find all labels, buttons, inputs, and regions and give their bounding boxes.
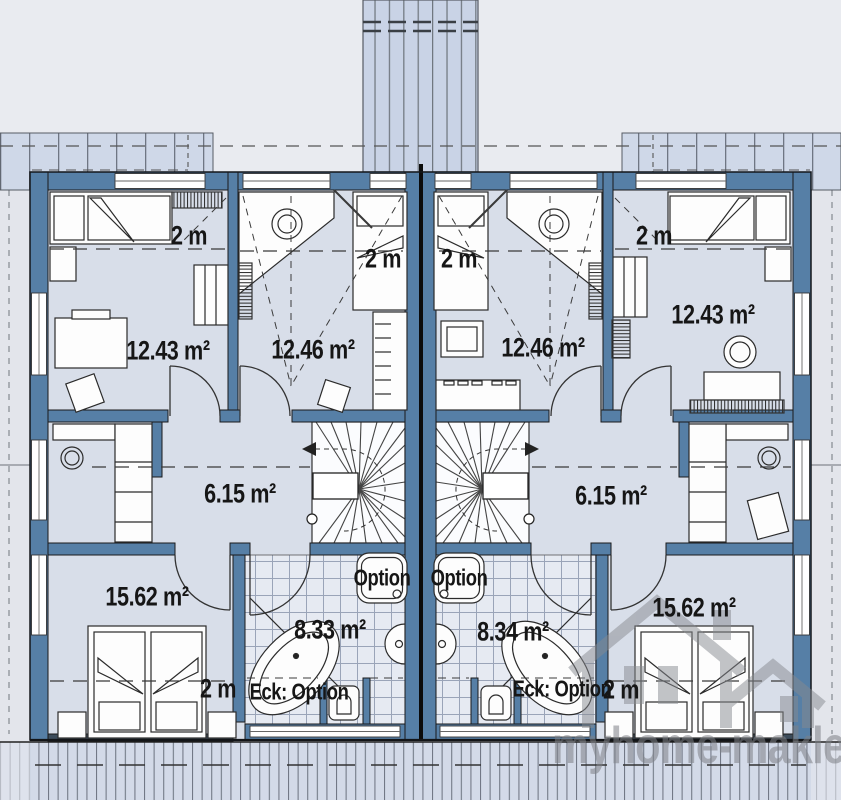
desk-left-top	[55, 310, 127, 368]
radiator-right-top	[612, 320, 630, 358]
watermark-chimney	[713, 610, 731, 640]
nightstand-left-2	[208, 712, 236, 738]
radiator-left-child	[239, 263, 252, 319]
floor-plan-canvas: 12.43 m² 2 m 12.46 m² 2 m 6.15 m² 8.33 m…	[0, 0, 841, 800]
floor-plan-drawing	[0, 0, 841, 800]
stair-landing-right	[483, 473, 528, 499]
wall-rooms-divider-right	[603, 172, 613, 422]
wardrobe-left-top	[194, 265, 228, 325]
stair-landing-left	[313, 473, 358, 499]
sideboard-right-top	[690, 400, 784, 413]
wall-bath-bedroom-left	[233, 555, 245, 722]
bed-left-top	[50, 192, 172, 244]
shower-right	[434, 553, 484, 603]
bed-left-main	[88, 626, 206, 738]
dresser-right-child	[436, 380, 520, 410]
cabinet-left-child	[373, 312, 407, 410]
bath-stub-right-1	[471, 678, 478, 724]
wardrobe-right-top	[613, 257, 647, 317]
armchair-right-child	[441, 321, 483, 357]
shelf-right-hall	[726, 424, 788, 440]
wall-rooms-divider-left	[228, 172, 238, 422]
bath-stub-left-2	[363, 678, 370, 724]
party-wall-centerline	[419, 164, 423, 740]
nightstand-left-1	[58, 712, 86, 738]
desk-right-top	[704, 372, 780, 400]
shower-left	[357, 553, 407, 603]
radiator-left-top	[172, 192, 222, 208]
radiator-right-child	[589, 263, 602, 319]
toilet-right	[481, 686, 511, 720]
toilet-left	[329, 686, 359, 720]
side-table-right-top	[765, 247, 791, 281]
bed-right-top	[668, 192, 790, 244]
wardrobe-left-hall	[115, 424, 152, 542]
shelf-left-hall	[53, 424, 115, 440]
wardrobe-right-hall	[689, 424, 726, 542]
side-table-left-top	[50, 247, 76, 281]
watermark-brand: myhome-makler	[552, 716, 841, 776]
